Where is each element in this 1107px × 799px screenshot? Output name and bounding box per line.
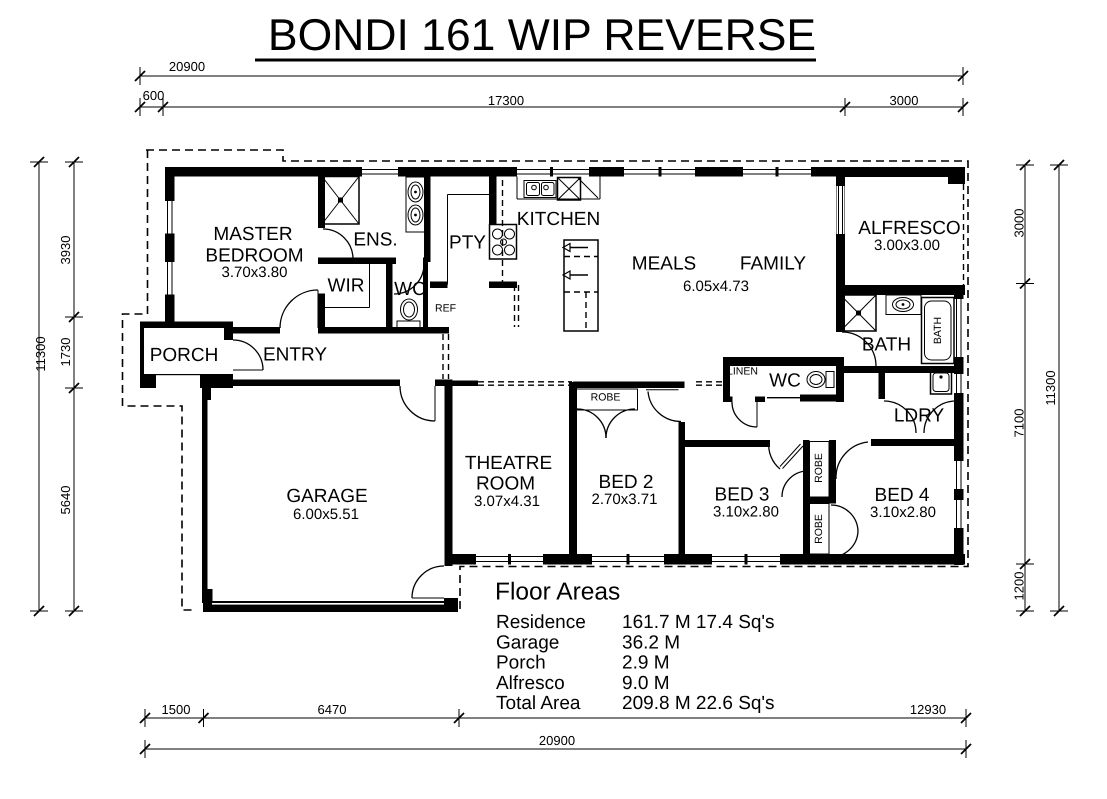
svg-text:BATH: BATH [932, 317, 944, 344]
svg-text:3.00x3.00: 3.00x3.00 [874, 237, 940, 254]
svg-text:WIR: WIR [328, 276, 365, 297]
svg-text:PORCH: PORCH [150, 345, 219, 366]
svg-text:Total Area: Total Area [496, 693, 581, 714]
svg-text:FAMILY: FAMILY [740, 254, 806, 275]
svg-text:209.8 M 22.6 Sq's: 209.8 M 22.6 Sq's [622, 693, 775, 714]
svg-text:PTY: PTY [449, 233, 486, 254]
svg-text:2.9 M: 2.9 M [622, 653, 670, 674]
svg-text:KITCHEN: KITCHEN [517, 209, 600, 230]
svg-text:Residence: Residence [496, 612, 586, 633]
svg-text:Alfresco: Alfresco [496, 673, 565, 694]
svg-text:BATH: BATH [862, 335, 911, 356]
svg-text:3.07x4.31: 3.07x4.31 [474, 493, 540, 510]
svg-text:ROBE: ROBE [813, 453, 825, 483]
svg-text:6.05x4.73: 6.05x4.73 [683, 278, 749, 295]
svg-text:6470: 6470 [318, 702, 347, 717]
svg-text:1500: 1500 [162, 702, 191, 717]
svg-text:BED 2: BED 2 [599, 472, 654, 493]
svg-text:1200: 1200 [1012, 572, 1027, 601]
svg-text:REF: REF [435, 303, 456, 315]
svg-text:1730: 1730 [58, 338, 73, 367]
svg-text:9.0 M: 9.0 M [622, 673, 670, 694]
svg-text:ROBE: ROBE [591, 392, 621, 404]
svg-text:Porch: Porch [496, 653, 546, 674]
svg-text:LINEN: LINEN [727, 366, 758, 378]
svg-text:ROOM: ROOM [476, 474, 535, 495]
svg-text:MASTER: MASTER [213, 224, 292, 245]
svg-text:ENS.: ENS. [353, 230, 397, 251]
svg-text:ALFRESCO: ALFRESCO [858, 218, 960, 239]
svg-text:WC: WC [394, 279, 426, 300]
svg-text:3000: 3000 [1012, 209, 1027, 238]
svg-text:3930: 3930 [58, 236, 73, 265]
svg-text:600: 600 [143, 88, 165, 103]
svg-text:BED 3: BED 3 [715, 485, 770, 506]
svg-text:LDRY: LDRY [894, 406, 945, 427]
svg-text:3.10x2.80: 3.10x2.80 [870, 504, 936, 521]
svg-text:3.70x3.80: 3.70x3.80 [222, 264, 288, 281]
svg-text:GARAGE: GARAGE [286, 486, 367, 507]
svg-text:MEALS: MEALS [632, 254, 696, 275]
svg-text:11300: 11300 [1043, 370, 1058, 405]
svg-text:THEATRE: THEATRE [465, 453, 552, 474]
svg-text:Floor Areas: Floor Areas [495, 579, 620, 606]
svg-text:7100: 7100 [1012, 409, 1027, 438]
svg-text:20900: 20900 [539, 733, 575, 748]
svg-text:ENTRY: ENTRY [263, 345, 327, 366]
svg-text:Garage: Garage [496, 632, 559, 653]
svg-text:6.00x5.51: 6.00x5.51 [293, 506, 359, 523]
svg-text:WC: WC [769, 371, 801, 392]
svg-text:3000: 3000 [890, 93, 919, 108]
svg-text:17300: 17300 [488, 93, 524, 108]
svg-text:161.7 M 17.4 Sq's: 161.7 M 17.4 Sq's [622, 612, 775, 633]
svg-text:BED 4: BED 4 [875, 485, 930, 506]
svg-text:12930: 12930 [910, 702, 946, 717]
svg-text:20900: 20900 [169, 59, 205, 74]
svg-text:BONDI 161 WIP REVERSE: BONDI 161 WIP REVERSE [268, 11, 816, 60]
svg-text:5640: 5640 [58, 486, 73, 515]
svg-text:ROBE: ROBE [813, 514, 825, 544]
svg-text:36.2 M: 36.2 M [622, 632, 680, 653]
svg-text:11300: 11300 [33, 336, 48, 371]
svg-text:2.70x3.71: 2.70x3.71 [592, 491, 658, 508]
svg-text:3.10x2.80: 3.10x2.80 [713, 504, 779, 521]
